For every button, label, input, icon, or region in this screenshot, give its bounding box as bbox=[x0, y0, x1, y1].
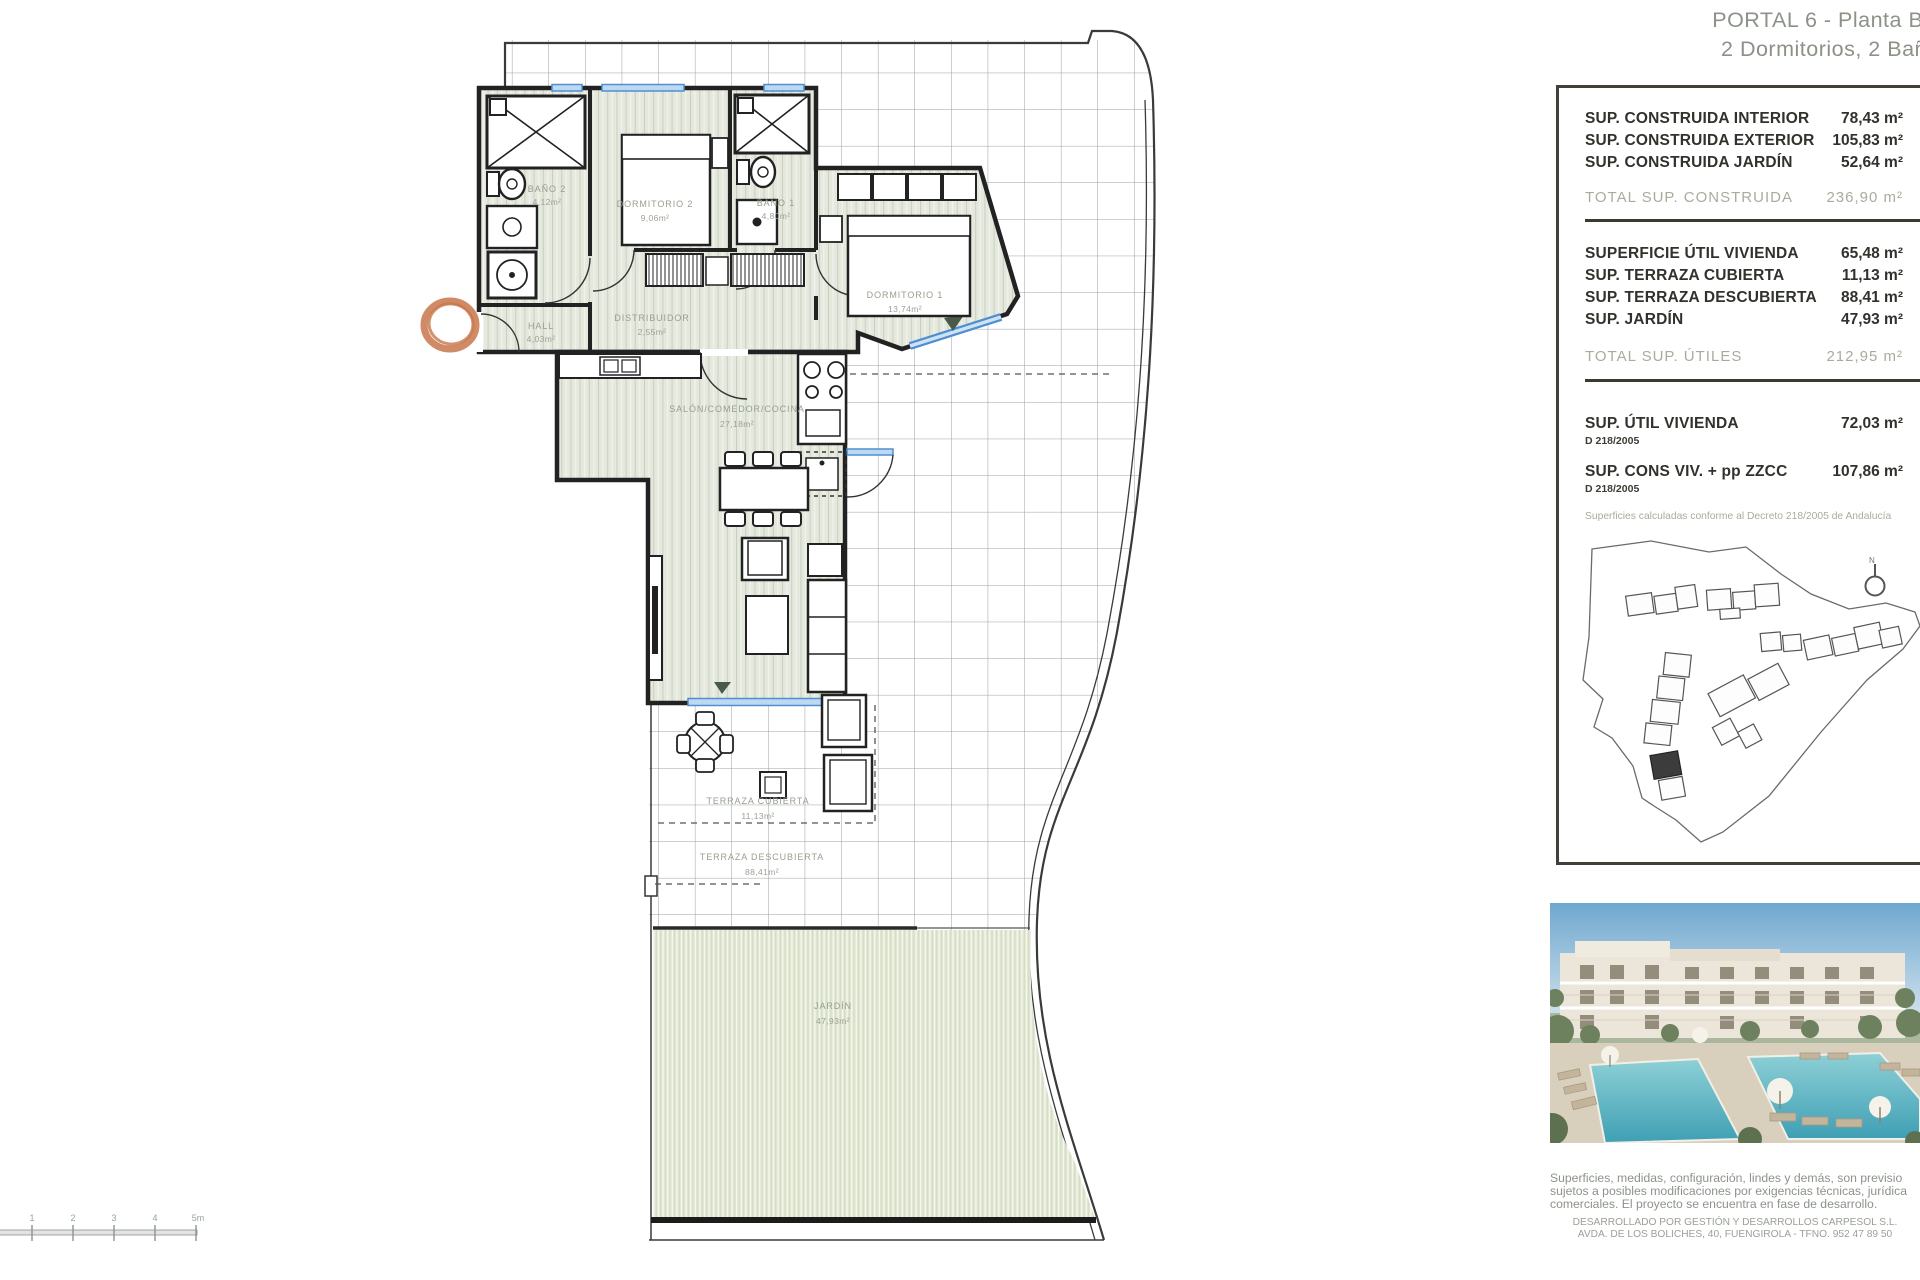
row-label: SUPERFICIE ÚTIL VIVIENDA bbox=[1585, 245, 1799, 263]
corridor-wardrobes bbox=[646, 254, 804, 286]
row-label: SUP. JARDÍN bbox=[1585, 311, 1683, 329]
room-label-bano2: BAÑO 2 bbox=[528, 184, 566, 194]
row-label: SUP. CONSTRUIDA INTERIOR bbox=[1585, 110, 1809, 128]
svg-text:N: N bbox=[1869, 556, 1875, 565]
table-row: SUP. JARDÍN 47,93 m² bbox=[1585, 311, 1903, 331]
room-area-hall: 4,03m² bbox=[527, 334, 556, 344]
row-label: SUP. CONSTRUIDA JARDÍN bbox=[1585, 154, 1793, 172]
garden bbox=[645, 876, 1096, 1220]
section-divider bbox=[1585, 219, 1920, 222]
table-row: SUP. CONSTRUIDA EXTERIOR 105,83 m² bbox=[1585, 132, 1903, 152]
room-area-dorm1: 13,74m² bbox=[888, 304, 922, 314]
table-row: SUP. CONS VIV. + pp ZZCC 107,86 m² bbox=[1585, 463, 1903, 483]
room-label-dorm2: DORMITORIO 2 bbox=[617, 199, 694, 209]
disclaimer-line3: comerciales. El proyecto se encuentra en… bbox=[1550, 1198, 1920, 1211]
room-area-salon: 27,18m² bbox=[720, 419, 754, 429]
row-value: 11,13 m² bbox=[1842, 267, 1903, 285]
scale-tick-4: 4 bbox=[152, 1213, 157, 1223]
row-label: SUP. ÚTIL VIVIENDA bbox=[1585, 415, 1739, 433]
row-label: SUP. TERRAZA CUBIERTA bbox=[1585, 267, 1784, 285]
room-label-jardin: JARDÍN bbox=[814, 1001, 852, 1011]
room-label-hall: HALL bbox=[528, 321, 554, 331]
table-row: SUP. CONSTRUIDA JARDÍN 52,64 m² bbox=[1585, 154, 1903, 174]
section-divider bbox=[1585, 379, 1920, 382]
decree-sublabel: D 218/2005 bbox=[1585, 483, 1639, 495]
north-arrow-icon: N bbox=[1866, 556, 1885, 596]
row-value: 52,64 m² bbox=[1841, 154, 1903, 172]
room-area-jardin: 47,93m² bbox=[816, 1016, 850, 1026]
room-area-distribuidor: 2,55m² bbox=[638, 327, 667, 337]
sheet-title-line2: 2 Dormitorios, 2 Bañ bbox=[1694, 35, 1920, 64]
room-label-distribuidor: DISTRIBUIDOR bbox=[614, 313, 689, 323]
row-value: 78,43 m² bbox=[1841, 110, 1903, 128]
scale-tick-3: 3 bbox=[111, 1213, 116, 1223]
disclaimer-line2: sujetos a posibles modificaciones por ex… bbox=[1550, 1185, 1920, 1198]
total-label: TOTAL SUP. CONSTRUIDA bbox=[1585, 189, 1793, 206]
row-label: SUP. TERRAZA DESCUBIERTA bbox=[1585, 289, 1817, 307]
sheet-title: PORTAL 6 - Planta Ba 2 Dormitorios, 2 Ba… bbox=[1694, 6, 1920, 64]
room-label-salon: SALÓN/COMEDOR/COCINA bbox=[669, 404, 805, 414]
total-label: TOTAL SUP. ÚTILES bbox=[1585, 348, 1742, 365]
areas-panel: SUP. CONSTRUIDA INTERIOR 78,43 m² SUP. C… bbox=[1556, 85, 1920, 865]
room-area-terraza-cubierta: 11,13m² bbox=[741, 811, 774, 821]
room-label-dorm1: DORMITORIO 1 bbox=[867, 290, 944, 300]
legal-footer: Superficies, medidas, configuración, lin… bbox=[1550, 1172, 1920, 1240]
room-area-bano1: 4,80m² bbox=[762, 211, 791, 221]
row-value: 88,41 m² bbox=[1841, 289, 1903, 307]
row-label: SUP. CONSTRUIDA EXTERIOR bbox=[1585, 132, 1815, 150]
sheet-title-line1: PORTAL 6 - Planta Ba bbox=[1694, 6, 1920, 35]
decree-sublabel: D 218/2005 bbox=[1585, 435, 1639, 447]
row-value: 65,48 m² bbox=[1841, 245, 1903, 263]
scale-tick-5: 5m bbox=[192, 1213, 205, 1223]
developer-line1: DESARROLLADO POR GESTIÓN Y DESARROLLOS C… bbox=[1550, 1217, 1920, 1229]
row-value: 107,86 m² bbox=[1832, 463, 1903, 481]
site-plan-map: N bbox=[1565, 536, 1920, 858]
table-row: SUPERFICIE ÚTIL VIVIENDA 65,48 m² bbox=[1585, 245, 1903, 265]
scale-tick-1: 1 bbox=[29, 1213, 34, 1223]
table-row: SUP. CONSTRUIDA INTERIOR 78,43 m² bbox=[1585, 110, 1903, 130]
entrance-marker-ring bbox=[424, 301, 476, 349]
room-area-terraza-descubierta: 88,41m² bbox=[745, 867, 779, 877]
floor-plan: BAÑO 2 4,12m² DORMITORIO 2 9,06m² BAÑO 1… bbox=[0, 0, 1250, 1280]
total-value: 236,90 m² bbox=[1826, 189, 1903, 206]
developer-line2: AVDA. DE LOS BOLICHES, 40, FUENGIROLA - … bbox=[1550, 1229, 1920, 1241]
room-label-bano1: BAÑO 1 bbox=[757, 198, 795, 208]
decree-note: Superficies calculadas conforme al Decre… bbox=[1585, 511, 1920, 522]
total-value: 212,95 m² bbox=[1826, 348, 1903, 365]
row-value: 105,83 m² bbox=[1832, 132, 1903, 150]
room-area-bano2: 4,12m² bbox=[533, 197, 562, 207]
row-value: 47,93 m² bbox=[1841, 311, 1903, 329]
building-render-photo bbox=[1550, 903, 1920, 1143]
room-area-dorm2: 9,06m² bbox=[641, 213, 670, 223]
scale-tick-2: 2 bbox=[70, 1213, 75, 1223]
table-total-row: TOTAL SUP. CONSTRUIDA 236,90 m² bbox=[1585, 189, 1903, 209]
room-label-terraza-cubierta: TERRAZA CUBIERTA bbox=[706, 796, 809, 806]
table-total-row: TOTAL SUP. ÚTILES 212,95 m² bbox=[1585, 348, 1903, 368]
row-label: SUP. CONS VIV. + pp ZZCC bbox=[1585, 463, 1787, 481]
table-row: SUP. TERRAZA DESCUBIERTA 88,41 m² bbox=[1585, 289, 1903, 309]
table-row: SUP. ÚTIL VIVIENDA 72,03 m² bbox=[1585, 415, 1903, 435]
scale-bar: 1 2 3 4 5m bbox=[0, 1213, 204, 1241]
room-label-terraza-descubierta: TERRAZA DESCUBIERTA bbox=[700, 852, 824, 862]
table-row: SUP. TERRAZA CUBIERTA 11,13 m² bbox=[1585, 267, 1903, 287]
disclaimer-line1: Superficies, medidas, configuración, lin… bbox=[1550, 1172, 1920, 1185]
row-value: 72,03 m² bbox=[1841, 415, 1903, 433]
